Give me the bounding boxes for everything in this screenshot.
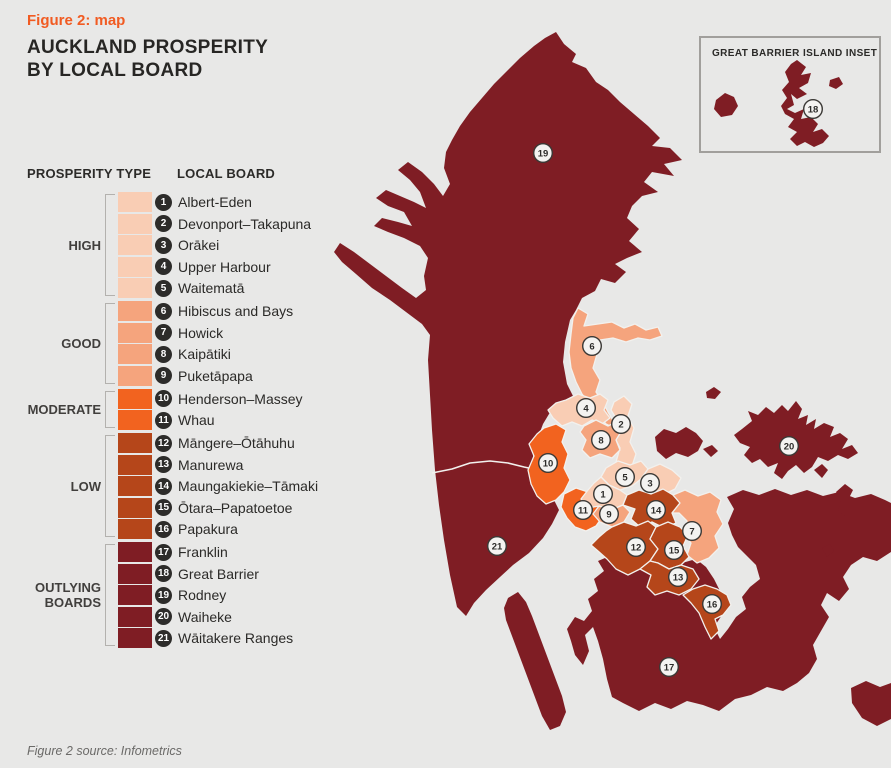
board-name: Ōtara–Papatoetoe <box>178 500 292 516</box>
board-number-badge: 2 <box>155 215 172 232</box>
board-number-badge: 7 <box>155 324 172 341</box>
prosperity-type-label: OUTLYING BOARDS <box>27 542 101 648</box>
marker-number: 5 <box>622 473 628 484</box>
map-marker-17: 17 <box>660 658 679 677</box>
marker-number: 19 <box>538 149 549 160</box>
legend-row-7: 7Howick <box>118 323 293 343</box>
map-marker-13: 13 <box>669 568 688 587</box>
marker-number: 12 <box>631 543 642 554</box>
inset-title: GREAT BARRIER ISLAND INSET <box>712 48 877 59</box>
board-number-badge: 12 <box>155 435 172 452</box>
board-number-badge: 20 <box>155 608 172 625</box>
legend-row-21: 21Wāitakere Ranges <box>118 628 293 648</box>
board-number-badge: 9 <box>155 367 172 384</box>
group-bracket <box>105 544 115 646</box>
legend-row-14: 14Maungakiekie–Tāmaki <box>118 476 318 496</box>
board-number-badge: 6 <box>155 303 172 320</box>
marker-number: 14 <box>651 506 662 517</box>
board-number-badge: 15 <box>155 499 172 516</box>
map-marker-11: 11 <box>574 501 593 520</box>
marker-number: 13 <box>673 573 684 584</box>
islet-c <box>706 387 721 399</box>
board-number-badge: 1 <box>155 194 172 211</box>
marker-number: 1 <box>600 490 606 501</box>
board-name: Waiheke <box>178 609 232 625</box>
legend-row-13: 13Manurewa <box>118 455 318 475</box>
map-marker-3: 3 <box>641 474 660 493</box>
islet-great-barrier-ne <box>829 77 843 89</box>
type-swatch <box>118 323 152 343</box>
board-name: Whau <box>178 412 215 428</box>
region-franklin-east <box>851 681 891 726</box>
type-swatch <box>118 542 152 562</box>
type-swatch <box>118 628 152 648</box>
map-marker-19: 19 <box>534 144 553 163</box>
map-marker-12: 12 <box>627 538 646 557</box>
marker-number: 3 <box>647 479 652 490</box>
type-swatch <box>118 585 152 605</box>
board-name: Howick <box>178 325 223 341</box>
type-swatch <box>118 214 152 234</box>
marker-number: 9 <box>606 510 611 521</box>
legend-row-1: 1Albert-Eden <box>118 192 311 212</box>
type-swatch <box>118 257 152 277</box>
marker-number: 18 <box>808 105 819 116</box>
marker-number: 21 <box>492 542 503 553</box>
board-name: Māngere–Ōtāhuhu <box>178 435 295 451</box>
marker-number: 17 <box>664 663 675 674</box>
map-marker-9: 9 <box>600 505 619 524</box>
figure-kicker: Figure 2: map <box>27 12 125 29</box>
board-name: Franklin <box>178 544 228 560</box>
legend-group-outlying: OUTLYING BOARDS17Franklin18Great Barrier… <box>27 542 347 648</box>
map-marker-20: 20 <box>780 437 799 456</box>
figure-title-line1: AUCKLAND PROSPERITY <box>27 36 268 59</box>
marker-number: 11 <box>578 506 589 517</box>
type-swatch <box>118 410 152 430</box>
legend-row-10: 10Henderson–Massey <box>118 389 303 409</box>
legend-group-high: HIGH1Albert-Eden2Devonport–Takapuna3Orāk… <box>27 192 347 298</box>
islet-a <box>814 464 828 478</box>
type-swatch <box>118 607 152 627</box>
type-swatch <box>118 455 152 475</box>
marker-number: 7 <box>689 527 694 538</box>
board-number-badge: 16 <box>155 521 172 538</box>
board-number-badge: 21 <box>155 630 172 647</box>
map-marker-4: 4 <box>577 399 596 418</box>
legend-row-12: 12Māngere–Ōtāhuhu <box>118 433 318 453</box>
legend-row-5: 5Waitematā <box>118 278 311 298</box>
type-swatch <box>118 519 152 539</box>
map-marker-18: 18 <box>804 100 823 119</box>
board-name: Devonport–Takapuna <box>178 216 311 232</box>
legend-group-low: LOW12Māngere–Ōtāhuhu13Manurewa14Maungaki… <box>27 433 347 539</box>
group-bracket <box>105 303 115 384</box>
board-name: Henderson–Massey <box>178 391 303 407</box>
board-name: Papakura <box>178 521 238 537</box>
legend-row-17: 17Franklin <box>118 542 293 562</box>
board-name: Waitematā <box>178 280 244 296</box>
board-number-badge: 10 <box>155 390 172 407</box>
board-name: Great Barrier <box>178 566 259 582</box>
legend-row-11: 11Whau <box>118 410 303 430</box>
type-swatch <box>118 433 152 453</box>
legend-groups: HIGH1Albert-Eden2Devonport–Takapuna3Orāk… <box>27 192 347 648</box>
board-number-badge: 18 <box>155 565 172 582</box>
marker-number: 10 <box>543 459 554 470</box>
board-name: Puketāpapa <box>178 368 253 384</box>
board-number-badge: 5 <box>155 280 172 297</box>
auckland-map: GREAT BARRIER ISLAND INSET 1234567891011… <box>330 18 891 750</box>
marker-number: 2 <box>618 420 623 431</box>
type-swatch <box>118 389 152 409</box>
prosperity-type-label: MODERATE <box>27 389 101 431</box>
board-name: Manurewa <box>178 457 243 473</box>
marker-number: 20 <box>784 442 795 453</box>
prosperity-type-label: LOW <box>27 433 101 539</box>
board-name: Maungakiekie–Tāmaki <box>178 478 318 494</box>
legend-group-good: GOOD6Hibiscus and Bays7Howick8Kaipātiki9… <box>27 301 347 386</box>
type-swatch <box>118 476 152 496</box>
board-number-badge: 11 <box>155 412 172 429</box>
board-name: Orākei <box>178 237 219 253</box>
board-name: Hibiscus and Bays <box>178 303 293 319</box>
local-board-header: LOCAL BOARD <box>177 166 275 181</box>
board-number-badge: 17 <box>155 544 172 561</box>
legend-group-moderate: MODERATE10Henderson–Massey11Whau <box>27 389 347 431</box>
map-marker-16: 16 <box>703 595 722 614</box>
board-name: Wāitakere Ranges <box>178 630 293 646</box>
prosperity-type-label: HIGH <box>27 192 101 298</box>
board-number-badge: 8 <box>155 346 172 363</box>
prosperity-type-header: PROSPERITY TYPE <box>27 166 177 181</box>
legend: PROSPERITY TYPE LOCAL BOARD HIGH1Albert-… <box>27 166 347 651</box>
legend-row-18: 18Great Barrier <box>118 564 293 584</box>
legend-row-6: 6Hibiscus and Bays <box>118 301 293 321</box>
board-number-badge: 13 <box>155 456 172 473</box>
map-marker-10: 10 <box>539 454 558 473</box>
map-marker-6: 6 <box>583 337 602 356</box>
group-bracket <box>105 435 115 537</box>
type-swatch <box>118 192 152 212</box>
map-marker-5: 5 <box>616 468 635 487</box>
island-little-barrier <box>714 93 738 117</box>
marker-number: 8 <box>598 436 603 447</box>
group-bracket <box>105 391 115 429</box>
region-franklin-awhitu <box>504 592 566 730</box>
figure-canvas: Figure 2: map AUCKLAND PROSPERITY BY LOC… <box>0 0 891 768</box>
prosperity-type-label: GOOD <box>27 301 101 386</box>
inset-box: GREAT BARRIER ISLAND INSET <box>700 37 880 152</box>
board-name: Kaipātiki <box>178 346 231 362</box>
board-name: Rodney <box>178 587 226 603</box>
marker-number: 15 <box>669 546 680 557</box>
board-name: Upper Harbour <box>178 259 271 275</box>
map-marker-8: 8 <box>592 431 611 450</box>
type-swatch <box>118 498 152 518</box>
legend-row-8: 8Kaipātiki <box>118 344 293 364</box>
type-swatch <box>118 366 152 386</box>
source-note: Figure 2 source: Infometrics <box>27 744 182 758</box>
map-marker-21: 21 <box>488 537 507 556</box>
type-swatch <box>118 564 152 584</box>
legend-headers: PROSPERITY TYPE LOCAL BOARD <box>27 166 347 181</box>
board-number-badge: 19 <box>155 587 172 604</box>
legend-row-20: 20Waiheke <box>118 607 293 627</box>
board-number-badge: 14 <box>155 478 172 495</box>
legend-row-19: 19Rodney <box>118 585 293 605</box>
legend-row-4: 4Upper Harbour <box>118 257 311 277</box>
legend-row-3: 3Orākei <box>118 235 311 255</box>
type-swatch <box>118 235 152 255</box>
group-bracket <box>105 194 115 296</box>
marker-number: 4 <box>583 404 589 415</box>
legend-row-9: 9Puketāpapa <box>118 366 293 386</box>
board-number-badge: 3 <box>155 237 172 254</box>
board-name: Albert-Eden <box>178 194 252 210</box>
type-swatch <box>118 344 152 364</box>
type-swatch <box>118 278 152 298</box>
figure-title: AUCKLAND PROSPERITY BY LOCAL BOARD <box>27 36 268 82</box>
board-number-badge: 4 <box>155 258 172 275</box>
figure-title-line2: BY LOCAL BOARD <box>27 59 268 82</box>
map-marker-2: 2 <box>612 415 631 434</box>
map-marker-14: 14 <box>647 501 666 520</box>
type-swatch <box>118 301 152 321</box>
marker-number: 6 <box>589 342 594 353</box>
map-marker-7: 7 <box>683 522 702 541</box>
islet-d <box>703 445 718 457</box>
legend-row-2: 2Devonport–Takapuna <box>118 214 311 234</box>
legend-row-16: 16Papakura <box>118 519 318 539</box>
map-marker-15: 15 <box>665 541 684 560</box>
island-rangitoto <box>655 427 703 459</box>
legend-row-15: 15Ōtara–Papatoetoe <box>118 498 318 518</box>
map-marker-1: 1 <box>594 485 613 504</box>
marker-number: 16 <box>707 600 718 611</box>
